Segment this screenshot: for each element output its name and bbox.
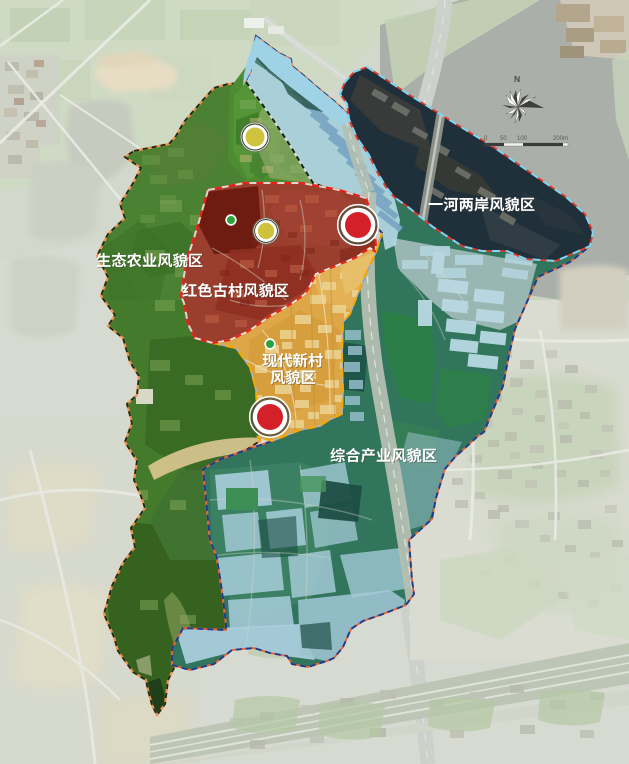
svg-text:100: 100 (517, 136, 528, 142)
svg-text:200m: 200m (553, 136, 568, 142)
svg-text:50: 50 (500, 136, 507, 142)
svg-text:N: N (514, 74, 520, 84)
